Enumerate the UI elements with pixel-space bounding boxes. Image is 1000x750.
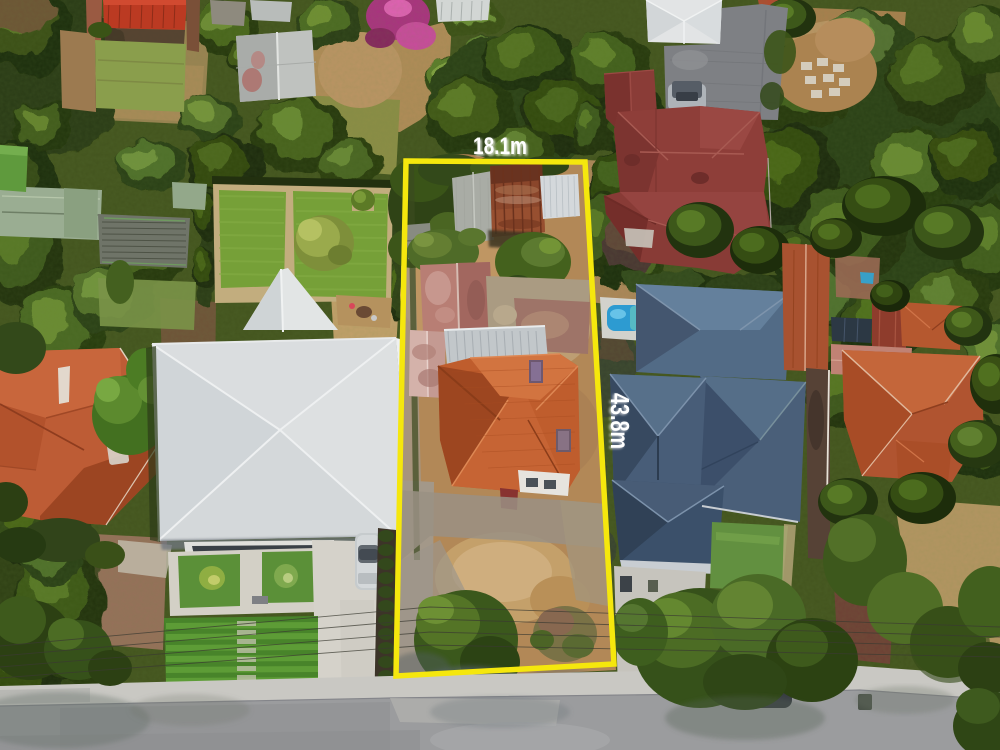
svg-text:43.8m: 43.8m (605, 393, 635, 449)
svg-text:18.1m: 18.1m (473, 133, 527, 160)
